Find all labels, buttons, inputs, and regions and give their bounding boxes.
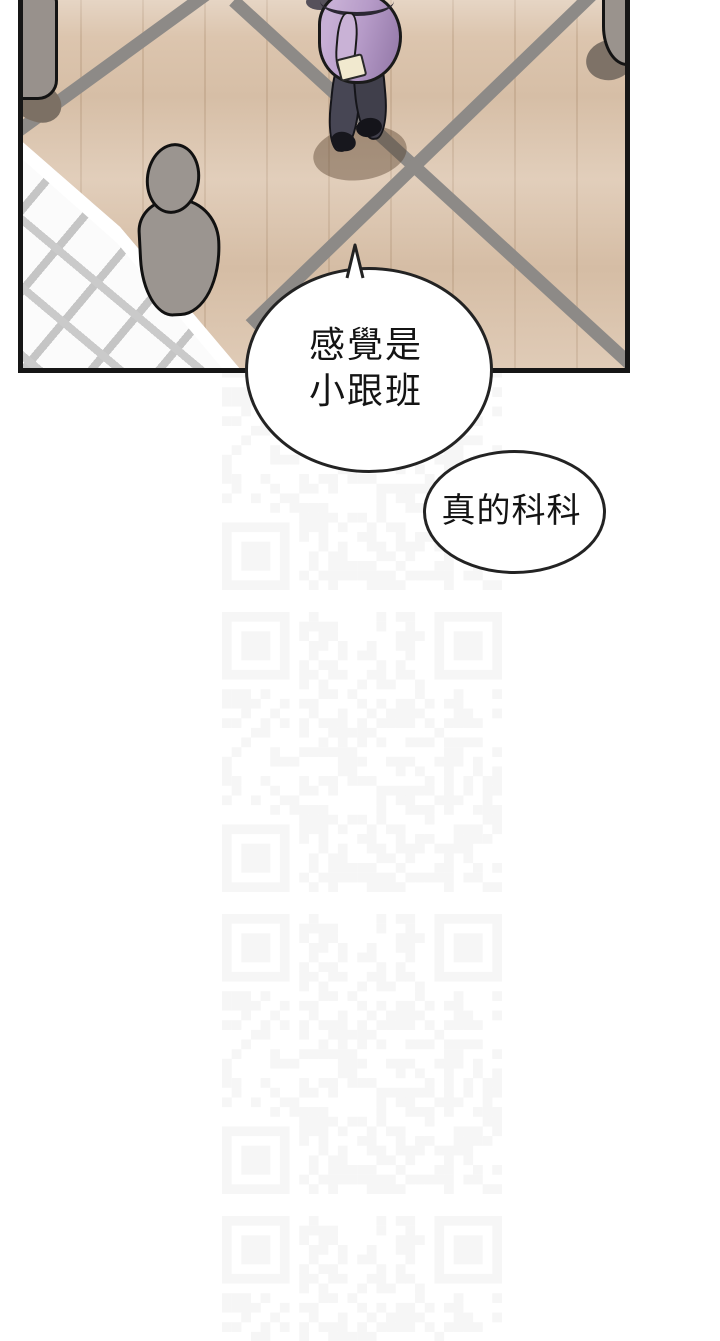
speech-text-2: 真的科科 (423, 492, 600, 530)
speech-text-1: 感覺是 小跟班 (245, 322, 487, 414)
speech-bubble-1-tail (344, 242, 366, 280)
qr-watermark (222, 1216, 502, 1341)
qr-watermark (222, 612, 502, 892)
qr-watermark (222, 914, 502, 1194)
comic-page: 感覺是 小跟班 真的科科 (0, 0, 720, 1341)
